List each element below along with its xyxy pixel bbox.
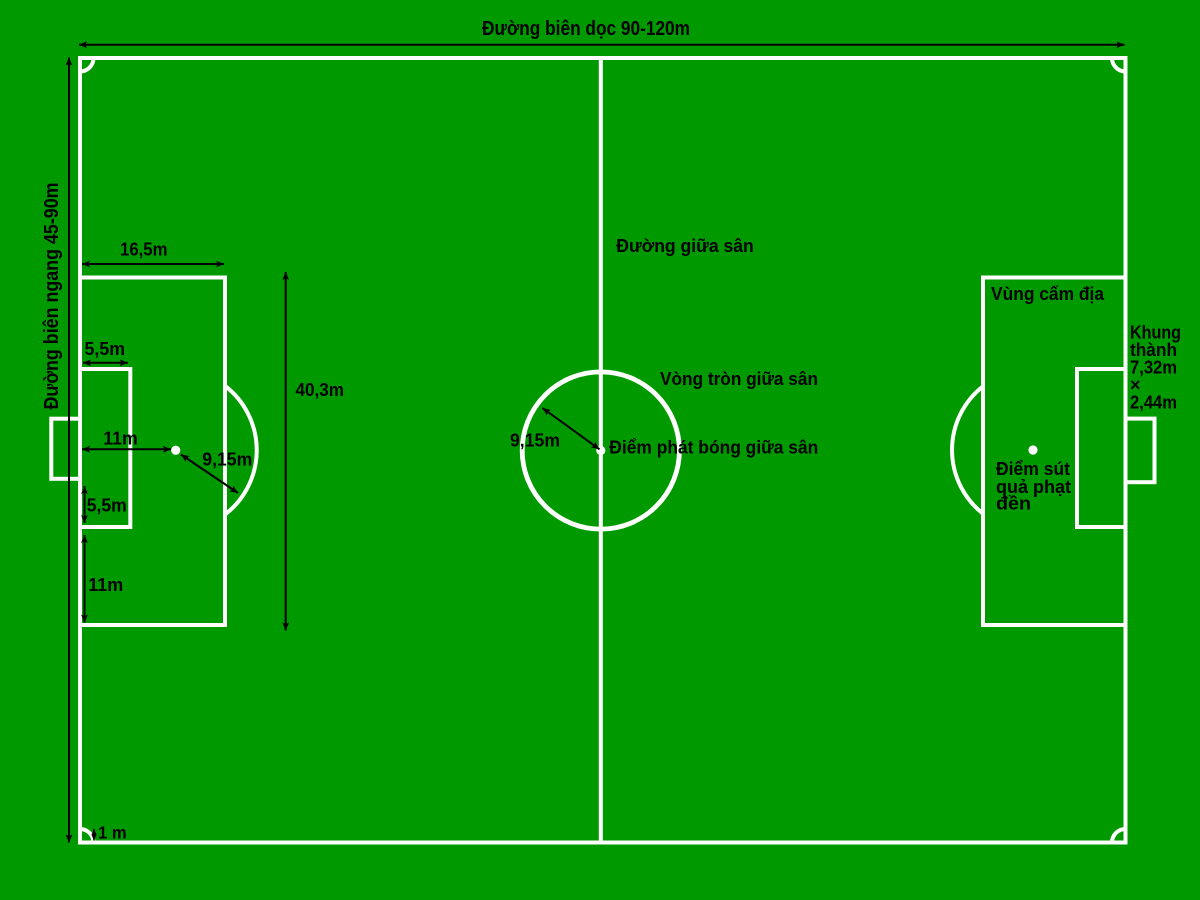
svg-text:Đường giữa sân: Đường giữa sân <box>616 236 754 256</box>
svg-text:11m: 11m <box>103 429 138 449</box>
svg-text:5,5m: 5,5m <box>85 339 126 359</box>
svg-text:Vòng tròn giữa sân: Vòng tròn giữa sân <box>660 369 818 389</box>
svg-text:9,15m: 9,15m <box>510 430 560 450</box>
svg-text:Điểm phát bóng giữa sân: Điểm phát bóng giữa sân <box>609 438 818 458</box>
svg-text:11m: 11m <box>88 575 123 595</box>
svg-text:1 m: 1 m <box>98 823 127 843</box>
svg-text:9,15m: 9,15m <box>202 450 252 470</box>
svg-text:Vùng cấm địa: Vùng cấm địa <box>991 284 1105 304</box>
svg-text:Đường biên ngang 45-90m: Đường biên ngang 45-90m <box>41 183 63 410</box>
svg-text:2,44m: 2,44m <box>1130 393 1177 413</box>
svg-text:40,3m: 40,3m <box>296 380 345 400</box>
svg-text:16,5m: 16,5m <box>120 239 168 259</box>
svg-text:đền: đền <box>996 493 1031 513</box>
svg-text:5,5m: 5,5m <box>87 495 127 515</box>
svg-text:Đường biên dọc 90-120m: Đường biên dọc 90-120m <box>482 18 690 40</box>
